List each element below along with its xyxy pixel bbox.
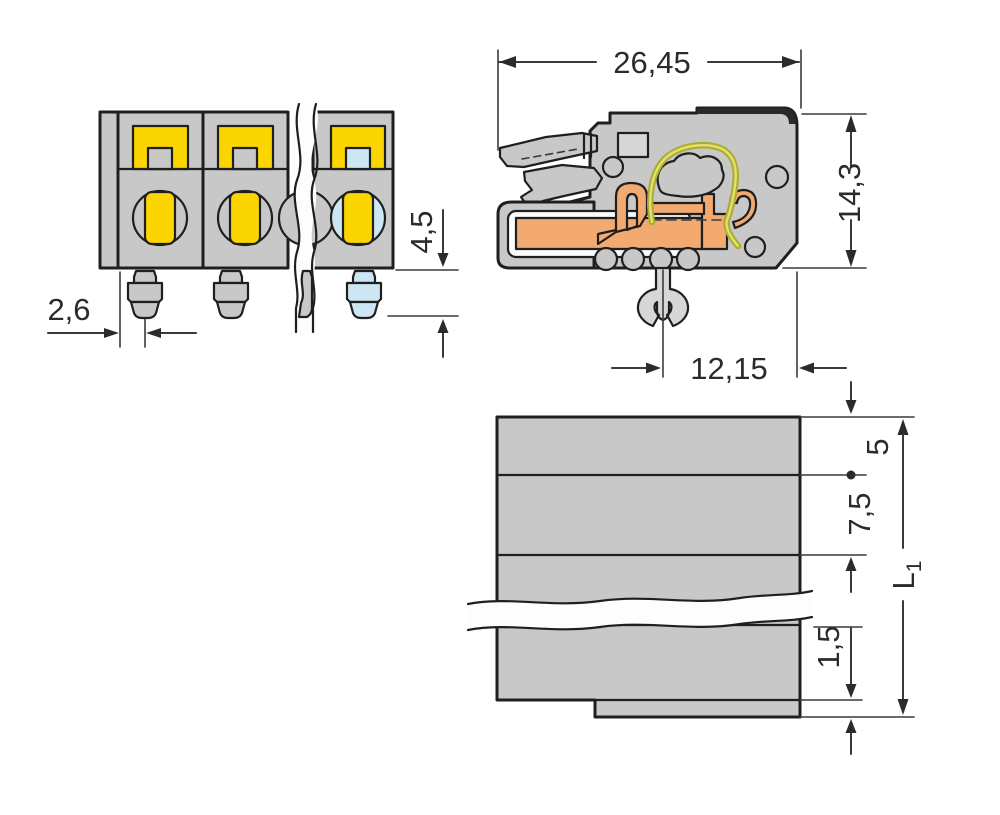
vent-hole [595, 248, 617, 270]
arrowhead-up-icon [846, 719, 857, 733]
dim-label: 26,45 [613, 45, 691, 80]
arrowhead-up-icon [898, 419, 909, 435]
push-button-notch [148, 148, 172, 169]
body-outline [497, 417, 800, 717]
connector-dimensional-drawing: 2,6 4,5 [0, 0, 1000, 815]
strain-relief-pins [128, 271, 381, 318]
dim-dot-marker [847, 471, 856, 480]
arrowhead-up-icon [846, 115, 857, 132]
clamp-spring-window [230, 192, 260, 244]
dim-pin-edge-offset: 2,6 [47, 272, 196, 347]
strain-relief-pin [128, 271, 162, 318]
arrowhead-left-icon [799, 363, 814, 374]
arrowhead-right-icon [104, 328, 119, 338]
strain-relief-pin-blue [347, 271, 381, 318]
arrowhead-down-icon [846, 684, 857, 698]
dim-label: 7,5 [842, 492, 877, 535]
arrowhead-right-icon [646, 363, 661, 374]
end-wall [100, 112, 118, 268]
push-button-notch [346, 148, 370, 169]
dim-label: 2,6 [47, 292, 90, 327]
dim-label: 1,5 [811, 625, 846, 668]
arrowhead-down-icon [438, 253, 449, 267]
dim-total-length: L1 [886, 419, 926, 715]
arrowhead-left-icon [146, 328, 161, 338]
dim-label: 5 [860, 438, 895, 455]
dim-label: 4,5 [404, 210, 439, 253]
arrowhead-down-icon [898, 699, 909, 715]
dim-label: 12,15 [690, 351, 768, 386]
arrowhead-down-icon [846, 400, 857, 414]
bottom-view: 5 7,5 1,5 L1 [468, 382, 926, 754]
locking-latch [500, 133, 597, 167]
housing-hole [745, 237, 765, 257]
break-line [295, 104, 318, 332]
vent-hole [650, 248, 672, 270]
side-cross-section-view: 26,45 14,3 12,15 [498, 45, 867, 386]
arrowhead-right-icon [782, 56, 799, 68]
vent-hole [622, 248, 644, 270]
arrowhead-down-icon [846, 250, 857, 267]
housing-hole [766, 166, 788, 188]
dim-pin-length: 4,5 [388, 210, 458, 357]
strain-relief-pin [214, 271, 248, 318]
vent-hole [677, 248, 699, 270]
arrowhead-up-icon [438, 319, 449, 333]
arrowhead-left-icon [499, 56, 516, 68]
push-button-notch [233, 148, 257, 169]
test-slot [618, 133, 648, 157]
clamp-spring-window [145, 192, 175, 244]
front-view: 2,6 4,5 [47, 104, 458, 357]
dim-label: 14,3 [832, 163, 867, 223]
housing-hole [603, 157, 623, 177]
technical-drawing-canvas: 2,6 4,5 [0, 0, 1000, 815]
arrowhead-up-icon [846, 557, 857, 571]
clamp-spring-window [343, 192, 373, 244]
dim-label: L1 [886, 561, 926, 590]
dim-foot-to-rear: 12,15 [612, 272, 846, 386]
clamp-ledge [646, 203, 704, 214]
dim-pole-chain: 5 7,5 1,5 [800, 382, 914, 754]
